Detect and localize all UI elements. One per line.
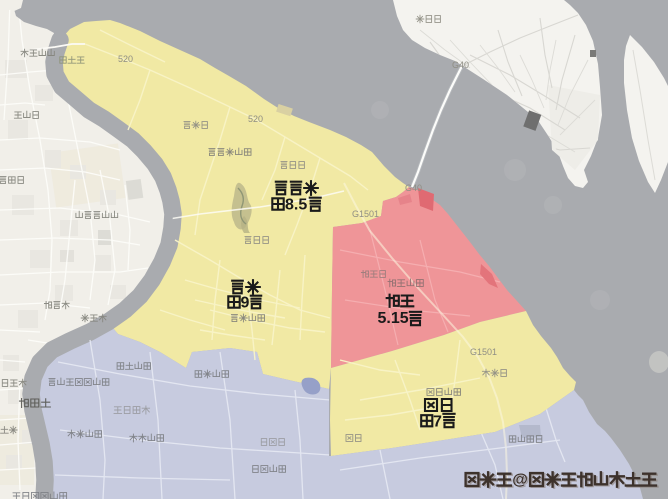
svg-text:7: 7 xyxy=(433,414,442,431)
svg-text:520: 520 xyxy=(248,114,263,124)
svg-text:520: 520 xyxy=(118,54,133,64)
svg-text:G40: G40 xyxy=(405,183,422,193)
svg-text:G40: G40 xyxy=(452,60,469,70)
svg-text:@: @ xyxy=(512,472,528,489)
svg-text:8.5: 8.5 xyxy=(285,197,307,214)
svg-text:G1501: G1501 xyxy=(470,347,497,357)
svg-text:5.15: 5.15 xyxy=(378,310,409,327)
svg-text:9: 9 xyxy=(241,295,250,312)
svg-text:G1501: G1501 xyxy=(352,209,379,219)
